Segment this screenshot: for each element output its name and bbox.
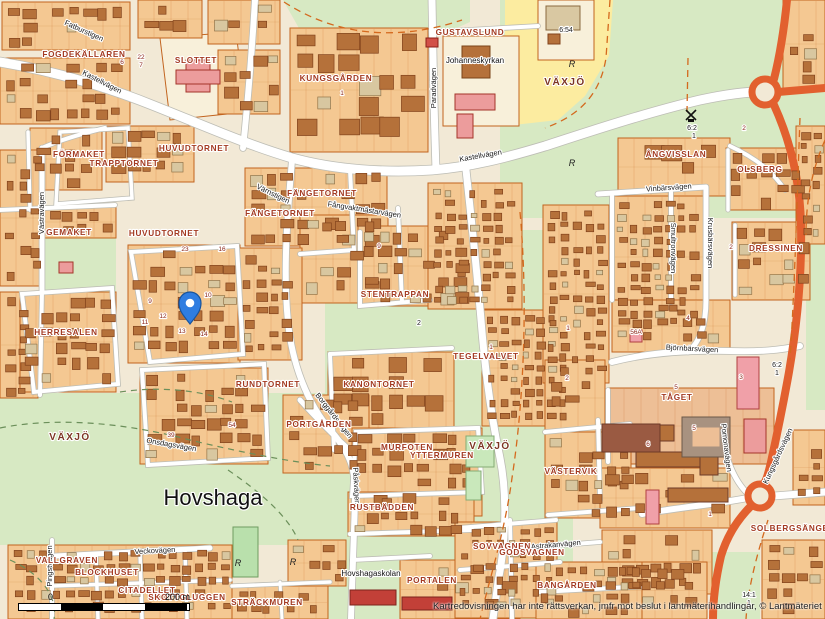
building <box>498 589 506 595</box>
building <box>512 411 517 417</box>
map-attribution: Kartredovisningen har inte rättsverkan, … <box>433 601 822 612</box>
building <box>513 401 519 405</box>
building <box>550 283 556 290</box>
building <box>42 313 53 323</box>
building <box>245 320 254 328</box>
building <box>470 225 479 231</box>
building <box>10 38 20 47</box>
building <box>258 5 271 12</box>
building <box>425 396 443 411</box>
building <box>494 249 501 255</box>
building <box>252 235 265 244</box>
district-label: STENTRAPPAN <box>361 290 430 299</box>
building <box>134 342 144 349</box>
building <box>447 214 455 220</box>
building <box>483 226 493 231</box>
building <box>619 567 625 575</box>
building <box>630 300 637 305</box>
building <box>214 20 227 31</box>
building <box>678 288 686 294</box>
building <box>484 587 491 593</box>
building <box>487 317 492 324</box>
building <box>620 453 627 459</box>
building <box>509 576 517 581</box>
building <box>191 420 205 428</box>
building <box>470 297 479 302</box>
district-label: FÖRMAKET <box>53 149 105 159</box>
ancient-monument-icon: R <box>290 557 297 567</box>
area-label: VÄXJÖ <box>544 75 585 88</box>
parcel-number: 5 <box>692 425 696 432</box>
building <box>510 564 517 572</box>
building <box>266 235 275 243</box>
public-building <box>646 490 659 524</box>
building <box>53 564 63 570</box>
building <box>666 536 678 545</box>
building <box>653 264 659 269</box>
building <box>608 567 617 576</box>
building <box>21 194 31 202</box>
building <box>784 547 794 554</box>
building <box>586 247 591 254</box>
building <box>208 603 215 609</box>
building <box>574 259 580 266</box>
building <box>524 340 529 348</box>
building <box>655 237 663 244</box>
building <box>81 109 89 118</box>
district-label: OLSBERG <box>737 165 782 174</box>
building <box>679 216 684 221</box>
building <box>435 250 442 257</box>
building <box>36 111 50 121</box>
district-label: DRESSINEN <box>749 244 803 253</box>
building <box>157 132 169 140</box>
building <box>439 498 449 505</box>
building <box>568 568 576 573</box>
building <box>417 464 428 471</box>
sports-field <box>466 471 481 500</box>
building <box>97 63 107 72</box>
building <box>209 577 216 584</box>
building <box>225 73 237 82</box>
building <box>691 275 700 281</box>
building <box>251 405 265 411</box>
building <box>584 333 590 340</box>
parcel-number: 3 <box>739 374 743 381</box>
building <box>446 226 455 233</box>
building <box>497 528 505 533</box>
building <box>83 95 94 102</box>
building <box>240 102 252 110</box>
building <box>505 238 512 243</box>
district-label: RUNDTORNET <box>236 380 300 389</box>
district-label: FOGDEKÄLLAREN <box>42 49 125 59</box>
building <box>128 131 141 141</box>
building <box>389 358 406 373</box>
building <box>617 227 622 231</box>
parcel-number: 4 <box>686 315 690 322</box>
building <box>58 358 66 365</box>
building <box>267 174 275 185</box>
building <box>176 390 184 400</box>
map-canvas[interactable]: RRRR2062271911242395456A5619111213141023… <box>0 0 825 619</box>
building <box>134 311 145 318</box>
building <box>297 119 317 135</box>
building <box>42 374 51 383</box>
building <box>436 286 443 293</box>
parcel-number: 10 <box>204 292 212 299</box>
building <box>8 9 19 16</box>
building <box>156 576 164 582</box>
building <box>411 512 418 519</box>
building <box>258 21 266 27</box>
building <box>691 311 698 318</box>
parcel-number: 1 <box>708 511 712 518</box>
building <box>78 212 87 218</box>
building <box>488 328 496 333</box>
building <box>52 9 63 17</box>
building <box>486 564 495 570</box>
building <box>784 589 792 597</box>
building <box>51 109 59 120</box>
building <box>556 568 562 576</box>
building <box>435 226 442 231</box>
building <box>523 352 528 358</box>
building <box>803 62 811 72</box>
building <box>297 35 315 46</box>
building <box>692 550 699 560</box>
building <box>770 275 783 285</box>
building <box>7 95 15 102</box>
building <box>304 448 317 455</box>
building <box>183 552 192 559</box>
building <box>459 215 467 219</box>
building <box>526 316 535 322</box>
building <box>572 357 577 363</box>
public-building <box>602 424 660 452</box>
building <box>813 181 819 188</box>
building <box>804 228 811 234</box>
building <box>25 344 37 354</box>
building <box>144 578 154 585</box>
building <box>681 475 694 482</box>
building <box>574 320 581 327</box>
district-label: PORTGÅRDEN <box>286 419 351 429</box>
building <box>380 75 394 89</box>
building <box>552 397 560 406</box>
building <box>238 433 250 441</box>
building <box>282 319 292 327</box>
building <box>257 280 266 288</box>
building <box>450 464 461 474</box>
public-building <box>176 70 220 84</box>
district-label: GODSVAGNEN <box>499 548 565 557</box>
building <box>393 233 401 244</box>
building <box>778 185 788 191</box>
building <box>785 260 793 269</box>
building <box>56 343 67 354</box>
building <box>424 359 442 372</box>
building <box>20 210 26 217</box>
building <box>551 211 560 218</box>
building <box>173 20 186 31</box>
parcel-number: 23 <box>181 246 189 253</box>
building <box>133 326 145 335</box>
building <box>326 174 335 184</box>
building <box>622 467 629 473</box>
building <box>586 282 596 286</box>
building <box>537 366 544 371</box>
building <box>698 332 707 338</box>
building <box>801 180 810 186</box>
building <box>305 401 313 409</box>
building <box>254 101 268 111</box>
building <box>526 329 534 335</box>
building <box>690 214 699 220</box>
building <box>112 132 123 143</box>
building <box>225 326 234 337</box>
building <box>815 146 823 153</box>
scale-bar-graphic <box>18 603 190 611</box>
district-label: VALLGRAVEN <box>36 556 98 565</box>
building <box>502 329 509 334</box>
building <box>678 310 685 315</box>
building <box>633 582 640 588</box>
building <box>642 582 650 590</box>
building <box>579 481 588 491</box>
building <box>388 466 401 477</box>
building <box>644 320 652 329</box>
street-label: Paradvägen <box>429 68 438 108</box>
building <box>497 577 503 584</box>
parcel-number: 5 <box>674 384 678 391</box>
building <box>439 511 446 520</box>
building <box>809 547 817 557</box>
building <box>535 352 541 359</box>
location-pin-dot <box>186 299 195 308</box>
building <box>293 546 303 553</box>
building <box>593 452 604 459</box>
building <box>537 318 545 324</box>
parcel-number: 11 <box>142 319 149 326</box>
district-label: SLOTTET <box>175 56 217 65</box>
cadastral-label: 6:2 <box>772 362 782 369</box>
building <box>360 36 378 53</box>
building <box>101 300 111 308</box>
building <box>535 529 541 537</box>
building <box>666 275 672 280</box>
building <box>418 479 431 486</box>
building <box>511 389 520 395</box>
building <box>575 306 584 313</box>
building <box>598 345 603 350</box>
building <box>172 162 183 172</box>
building <box>22 64 34 71</box>
building <box>548 344 553 351</box>
building <box>340 119 360 135</box>
building <box>770 545 780 551</box>
building <box>737 228 747 238</box>
building <box>643 249 648 256</box>
cadastral-label: 6:2 <box>687 125 697 132</box>
building <box>619 319 630 324</box>
parcel-number: 12 <box>159 313 167 320</box>
building <box>323 223 332 231</box>
building <box>211 296 225 307</box>
major-road <box>778 88 825 92</box>
building <box>149 281 156 293</box>
building <box>20 78 30 86</box>
building <box>562 213 567 221</box>
building <box>67 110 77 118</box>
building <box>631 311 637 318</box>
building <box>501 400 508 407</box>
district-label: GEMAKET <box>46 228 92 237</box>
poi-label: Hovshagaskolan <box>341 569 400 578</box>
building <box>624 536 635 544</box>
building <box>563 282 568 287</box>
building <box>490 400 495 407</box>
building <box>545 528 554 533</box>
building <box>618 311 626 316</box>
building <box>500 413 509 418</box>
building <box>298 54 313 67</box>
building <box>507 202 514 207</box>
building <box>52 136 60 144</box>
cadastral-label: 14:1 <box>742 592 756 599</box>
roundabout <box>752 79 778 105</box>
building <box>205 406 216 413</box>
building <box>22 38 31 46</box>
building <box>323 546 334 552</box>
building <box>814 464 820 470</box>
building <box>582 382 590 389</box>
building <box>209 342 219 349</box>
building <box>290 432 299 440</box>
building <box>598 308 607 313</box>
building <box>656 582 664 589</box>
building <box>396 512 407 519</box>
building <box>459 225 467 230</box>
building <box>221 565 229 570</box>
road <box>40 290 42 395</box>
building <box>798 489 805 495</box>
building <box>173 133 180 144</box>
building <box>597 270 603 274</box>
building <box>445 200 454 205</box>
building <box>220 433 232 443</box>
building <box>655 216 664 222</box>
district-label: BANGÅRDEN <box>537 580 597 590</box>
building <box>495 189 503 194</box>
building <box>338 561 346 569</box>
parcel-number: 7 <box>139 62 143 69</box>
building <box>318 55 334 73</box>
building <box>27 576 34 585</box>
building <box>561 317 567 321</box>
building <box>72 358 80 369</box>
district-label: SOLBERGSÄNGEN <box>751 523 825 533</box>
building <box>524 377 529 384</box>
building <box>335 446 343 454</box>
building <box>258 266 266 271</box>
building <box>373 464 382 472</box>
building <box>512 340 521 345</box>
building <box>814 133 821 138</box>
building <box>225 56 236 65</box>
building <box>272 345 281 350</box>
building <box>147 389 156 399</box>
building <box>148 341 160 349</box>
district-label: KUNGSGÅRDEN <box>300 73 373 83</box>
building <box>608 467 616 475</box>
building <box>451 526 462 534</box>
building <box>67 577 75 582</box>
district-label: STRÄCKMUREN <box>231 597 303 607</box>
building <box>280 173 292 180</box>
building <box>20 108 31 118</box>
building <box>799 475 808 480</box>
city-label: Hovshaga <box>163 485 263 510</box>
building <box>678 204 685 209</box>
building <box>425 527 436 537</box>
scale-start-label: 0 <box>48 592 53 602</box>
parcel-number: 2 <box>565 375 569 382</box>
street-label: Smultronvägen <box>669 223 678 273</box>
parcel-number: 9 <box>148 298 152 305</box>
building <box>460 297 468 303</box>
building <box>488 413 497 419</box>
district-label: HUVUDTORNET <box>159 144 229 153</box>
parcel-number: 1 <box>340 90 344 97</box>
building <box>127 147 141 157</box>
building <box>643 333 651 340</box>
building <box>690 225 696 232</box>
building <box>98 9 106 21</box>
public-building <box>744 419 766 453</box>
building <box>596 331 605 336</box>
building <box>474 565 483 571</box>
building <box>104 552 112 560</box>
building <box>198 577 206 585</box>
building <box>521 575 527 580</box>
building <box>782 574 795 583</box>
building <box>381 232 389 242</box>
building <box>696 319 705 325</box>
building <box>484 527 494 534</box>
building <box>83 135 90 146</box>
building <box>111 108 119 114</box>
building <box>103 374 111 384</box>
building <box>310 606 316 613</box>
street-label: Västravägen <box>37 192 46 234</box>
scale-end-label: 200 m <box>165 592 190 602</box>
building <box>243 281 250 289</box>
building <box>548 223 555 230</box>
building <box>269 56 278 63</box>
building <box>561 343 569 351</box>
building <box>549 237 555 243</box>
building <box>25 357 38 365</box>
building <box>658 319 668 325</box>
building <box>103 224 112 232</box>
building <box>790 47 797 54</box>
building <box>51 211 61 219</box>
building <box>435 297 441 302</box>
parcel-number: 56A <box>630 329 642 336</box>
building <box>801 143 806 148</box>
building <box>536 377 542 384</box>
